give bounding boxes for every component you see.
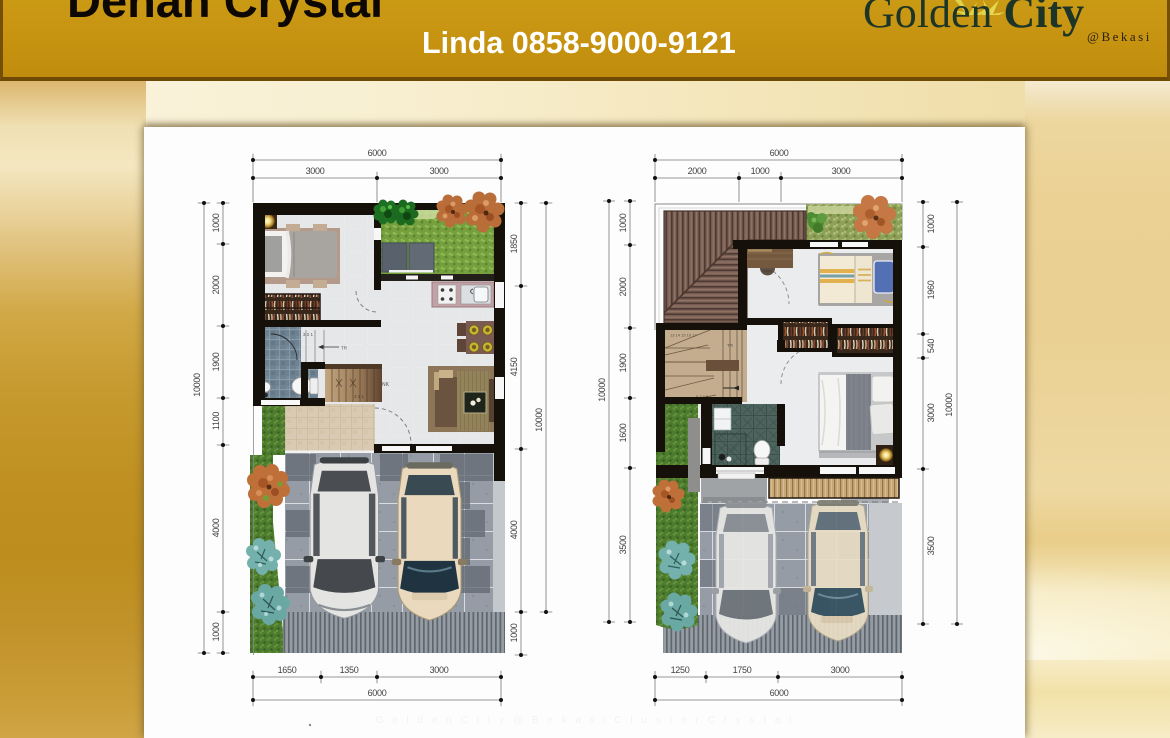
svg-text:1000: 1000 [926, 214, 936, 233]
svg-text:TR: TR [727, 343, 734, 348]
svg-text:1000: 1000 [211, 213, 221, 232]
svg-text:1000: 1000 [618, 213, 628, 232]
svg-text:NK: NK [382, 382, 390, 388]
svg-text:6000: 6000 [770, 688, 789, 698]
svg-text:540: 540 [926, 339, 936, 353]
svg-text:10000: 10000 [597, 378, 607, 402]
svg-text:10000: 10000 [944, 393, 954, 417]
svg-text:1900: 1900 [211, 352, 221, 371]
svg-text:3 2 1: 3 2 1 [303, 332, 314, 337]
svg-text:1850: 1850 [509, 234, 519, 253]
svg-text:1600: 1600 [618, 423, 628, 442]
svg-text:3500: 3500 [618, 535, 628, 554]
svg-text:4000: 4000 [211, 518, 221, 537]
svg-text:2000: 2000 [688, 166, 707, 176]
svg-text:3000: 3000 [430, 665, 449, 675]
svg-text:1960: 1960 [926, 280, 936, 299]
svg-text:2000: 2000 [618, 277, 628, 296]
svg-text:6000: 6000 [770, 148, 789, 158]
svg-text:4000: 4000 [509, 520, 519, 539]
svg-text:3500: 3500 [926, 536, 936, 555]
svg-text:6000: 6000 [368, 148, 387, 158]
svg-text:TR: TR [341, 346, 348, 351]
svg-text:1250: 1250 [671, 665, 690, 675]
svg-text:3 2 1: 3 2 1 [354, 394, 365, 399]
svg-text:1650: 1650 [278, 665, 297, 675]
svg-text:10000: 10000 [534, 408, 544, 432]
svg-text:10000: 10000 [192, 373, 202, 397]
svg-text:1900: 1900 [618, 353, 628, 372]
svg-text:1000: 1000 [509, 623, 519, 642]
svg-text:1100: 1100 [211, 412, 221, 430]
svg-text:3000: 3000 [306, 166, 325, 176]
svg-text:13 14 15 16 17: 13 14 15 16 17 [670, 333, 697, 338]
svg-text:6000: 6000 [368, 688, 387, 698]
svg-text:2000: 2000 [211, 275, 221, 294]
svg-text:3000: 3000 [831, 665, 850, 675]
svg-text:1000: 1000 [751, 166, 770, 176]
svg-text:3000: 3000 [832, 166, 851, 176]
svg-text:3000: 3000 [430, 166, 449, 176]
svg-text:4150: 4150 [509, 357, 519, 376]
svg-text:1350: 1350 [340, 665, 359, 675]
svg-text:1000: 1000 [211, 622, 221, 641]
svg-text:1750: 1750 [733, 665, 752, 675]
svg-text:3000: 3000 [926, 403, 936, 422]
svg-text:G o l d e n C i t y @ B e k: G o l d e n C i t y @ B e k a s i C l u … [376, 715, 795, 726]
